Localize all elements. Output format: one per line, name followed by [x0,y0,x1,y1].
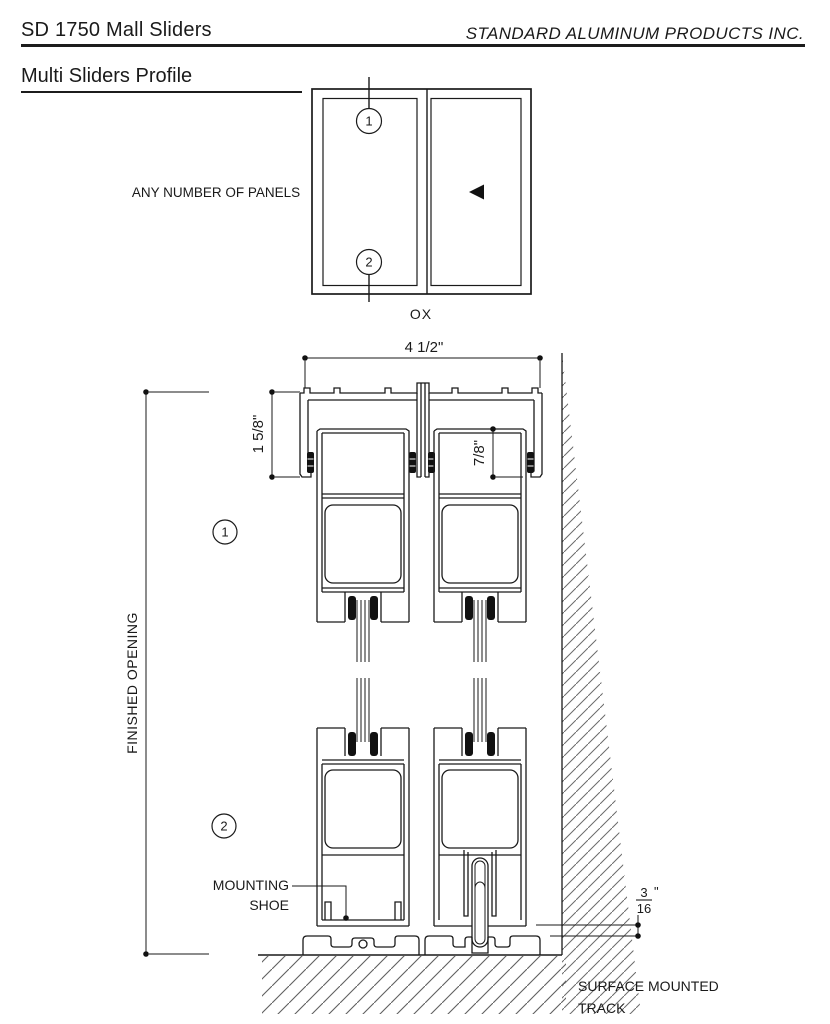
wall-hatch [562,353,641,1014]
plan-callout-1: 1 [365,114,372,129]
mounting-shoe-leader-dot [343,915,349,921]
mounting-shoe [317,902,409,926]
mounting-shoe-label-line1: MOUNTING [213,877,289,893]
head-track [300,383,542,477]
track-label-line2: TRACK [578,1000,626,1016]
dim-finished-opening: FINISHED OPENING [124,389,209,957]
floor-hatch [262,956,566,1014]
section-callout-2: 2 [220,819,227,834]
section-callouts: 1 2 [212,520,237,838]
mounting-shoe-label-line2: SHOE [249,897,289,913]
panel-1-section [317,429,409,926]
section-view: 4 1/2" 1 5/8" 7/8" [124,339,719,1016]
dim-panel-pocket-text: 7/8" [471,440,488,466]
ox-config-label: OX [410,306,432,322]
mounting-shoe-callout: MOUNTING SHOE [213,877,346,916]
dim-panel-pocket: 7/8" [471,426,523,480]
dim-head-height: 1 5/8" [250,389,300,480]
plan-view: 1 2 ANY NUMBER OF PANELS OX [132,77,531,322]
dim-head-height-text: 1 5/8" [250,415,267,454]
dim-clearance-numerator: 3 [640,885,647,900]
dim-clearance-denominator: 16 [637,901,651,916]
track-label-line1: SURFACE MOUNTED [578,978,719,994]
plan-frame [312,89,531,294]
slide-direction-arrow-icon [469,185,484,200]
surface-mounted-track [303,936,540,955]
technical-drawing: 1 2 ANY NUMBER OF PANELS OX [0,0,830,1024]
dim-overall-width: 4 1/2" [302,339,543,388]
any-number-of-panels-label: ANY NUMBER OF PANELS [132,185,300,200]
dim-overall-width-text: 4 1/2" [405,339,444,356]
plan-callout-2: 2 [365,255,372,270]
catalog-page: SD 1750 Mall Sliders STANDARD ALUMINUM P… [0,0,830,1024]
roller-assembly [434,850,526,947]
panel-2-section [434,429,526,947]
section-callout-1: 1 [221,525,228,540]
dim-clearance-unit: " [654,884,659,899]
finished-opening-label: FINISHED OPENING [124,612,140,754]
